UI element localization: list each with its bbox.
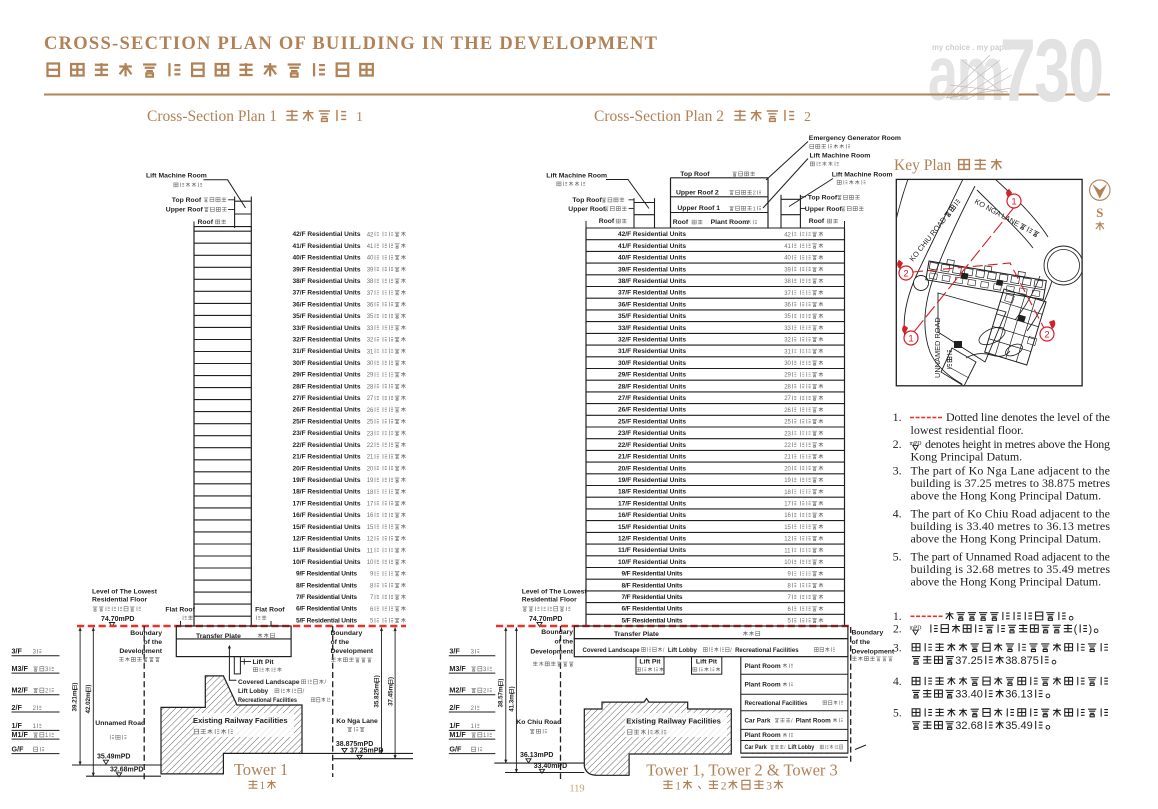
svg-text:2: 2 [753, 191, 756, 197]
svg-text:): ) [508, 686, 515, 688]
svg-text:1: 1 [33, 724, 37, 730]
svg-text:3: 3 [471, 650, 475, 656]
svg-text:26: 26 [367, 408, 374, 414]
svg-text:41/F Residential Units: 41/F Residential Units [293, 243, 361, 250]
svg-text:Upper Roof 1: Upper Roof 1 [677, 205, 720, 212]
svg-text:37/F Residential Units: 37/F Residential Units [618, 290, 686, 297]
svg-text:38.57m(: 38.57m( [497, 684, 504, 708]
svg-text:Development: Development [119, 648, 162, 655]
svg-text:32/F Residential Units: 32/F Residential Units [293, 337, 361, 344]
svg-text:31: 31 [784, 349, 791, 355]
svg-text:74.70mPD: 74.70mPD [101, 616, 134, 623]
svg-text:35/F Residential Units: 35/F Residential Units [618, 313, 686, 320]
svg-text:25: 25 [367, 420, 374, 426]
svg-text:): ) [72, 683, 79, 685]
svg-text:CROSS-SECTION PLAN OF BUILDING: CROSS-SECTION PLAN OF BUILDING IN THE DE… [44, 34, 658, 54]
svg-text:8: 8 [370, 583, 374, 589]
svg-text:above the Hong Kong Principal: above the Hong Kong Principal Datum. [911, 532, 1102, 546]
svg-text:above the Hong Kong Principal: above the Hong Kong Principal Datum. [911, 489, 1102, 503]
svg-text:Car Park: Car Park [745, 717, 771, 724]
svg-text:1/F: 1/F [449, 721, 460, 730]
svg-text:Top Roof: Top Roof [172, 197, 202, 204]
svg-text:Lift Machine Room: Lift Machine Room [146, 173, 207, 180]
svg-text:UNNAMED ROAD: UNNAMED ROAD [933, 317, 942, 378]
svg-text:18: 18 [367, 490, 374, 496]
svg-text:21: 21 [367, 455, 374, 461]
svg-text:36/F Residential Units: 36/F Residential Units [618, 301, 686, 308]
svg-text:/: / [730, 647, 732, 654]
svg-text:Development: Development [530, 649, 573, 656]
svg-text:Upper Roof 2: Upper Roof 2 [676, 189, 719, 196]
svg-text:3: 3 [33, 650, 37, 656]
svg-text:Lift Machine Room: Lift Machine Room [810, 153, 871, 160]
svg-text:730: 730 [1000, 22, 1103, 121]
svg-text:42/F Residential Units: 42/F Residential Units [293, 231, 361, 238]
svg-text:Recreational Facilities: Recreational Facilities [745, 700, 808, 707]
svg-text:7/F Residential Units: 7/F Residential Units [296, 594, 357, 601]
svg-text:29/F Residential Units: 29/F Residential Units [618, 372, 686, 379]
svg-text:3.: 3. [893, 463, 902, 477]
svg-text:3.: 3. [893, 642, 902, 654]
svg-text:2: 2 [483, 689, 487, 695]
svg-text:Flat Roof: Flat Roof [165, 607, 195, 614]
svg-text:37.45m(: 37.45m( [387, 682, 394, 706]
svg-text:Level of The Lowest: Level of The Lowest [522, 589, 588, 596]
svg-text:6/F Residential Units: 6/F Residential Units [296, 606, 357, 613]
svg-text:18: 18 [784, 490, 791, 496]
svg-text:1: 1 [260, 780, 266, 792]
svg-text:Residential Floor: Residential Floor [92, 597, 147, 604]
svg-text:above the Hong Kong Principal: above the Hong Kong Principal Datum. [911, 575, 1102, 589]
svg-text:28: 28 [367, 384, 374, 390]
svg-text:/: / [303, 688, 305, 695]
svg-text:41: 41 [784, 244, 791, 250]
svg-text:36.13: 36.13 [1005, 689, 1033, 701]
svg-text:Lift Pit: Lift Pit [639, 659, 661, 666]
svg-text:Emergency Generator Room: Emergency Generator Room [809, 135, 901, 142]
svg-text:11/F Residential Units: 11/F Residential Units [618, 547, 686, 554]
svg-text:G/F: G/F [12, 745, 25, 754]
svg-text:35.49: 35.49 [1005, 720, 1033, 732]
svg-text:42: 42 [367, 232, 374, 238]
svg-text:6: 6 [370, 607, 374, 613]
svg-text:19/F Residential Units: 19/F Residential Units [293, 477, 361, 484]
svg-text:Boundary: Boundary [331, 630, 363, 637]
svg-text:Ko Nga Lane: Ko Nga Lane [336, 718, 378, 725]
svg-text:33: 33 [784, 326, 791, 332]
svg-text:7: 7 [788, 595, 792, 601]
svg-text:Residential Floor: Residential Floor [522, 597, 577, 604]
svg-text:Upper Roof: Upper Roof [805, 206, 843, 213]
svg-text:28: 28 [784, 384, 791, 390]
svg-text:Lift Pit: Lift Pit [696, 659, 718, 666]
svg-text:7/F Residential Units: 7/F Residential Units [622, 594, 683, 601]
svg-text:1: 1 [908, 334, 913, 345]
svg-text:20: 20 [367, 466, 374, 472]
svg-text:2: 2 [804, 110, 811, 125]
svg-text:37: 37 [784, 291, 791, 297]
svg-text:27/F Residential Units: 27/F Residential Units [293, 395, 361, 402]
svg-text:M2/F: M2/F [449, 686, 466, 695]
svg-text:15/F Residential Units: 15/F Residential Units [618, 524, 686, 531]
svg-text:18/F Residential Units: 18/F Residential Units [618, 489, 686, 496]
svg-text:11/F Residential Units: 11/F Residential Units [293, 547, 361, 554]
svg-text:Roof: Roof [809, 218, 825, 225]
svg-text:2.: 2. [893, 437, 902, 451]
svg-text:1: 1 [753, 206, 756, 212]
svg-text:17: 17 [367, 502, 374, 508]
svg-text:32.68: 32.68 [955, 720, 983, 732]
svg-text:Development: Development [852, 648, 895, 655]
svg-text:Lift Lobby: Lift Lobby [788, 745, 815, 752]
svg-text:41/F Residential Units: 41/F Residential Units [618, 243, 686, 250]
svg-text:26/F Residential Units: 26/F Residential Units [618, 407, 686, 414]
svg-text:18/F Residential Units: 18/F Residential Units [293, 489, 361, 496]
svg-text:36.13mPD: 36.13mPD [520, 752, 553, 759]
svg-text:3: 3 [483, 667, 487, 673]
svg-text:Key Plan: Key Plan [894, 157, 952, 174]
svg-text:of the: of the [555, 639, 574, 646]
svg-text:26: 26 [784, 408, 791, 414]
svg-text:1: 1 [1011, 197, 1016, 208]
svg-text:Tower 1: Tower 1 [234, 760, 288, 779]
svg-text:38: 38 [367, 279, 374, 285]
svg-text:32: 32 [784, 338, 791, 344]
svg-text:16/F Residential Units: 16/F Residential Units [618, 512, 686, 519]
svg-text:Car Park: Car Park [745, 745, 768, 752]
svg-text:19: 19 [367, 478, 374, 484]
svg-text:74.70mPD: 74.70mPD [529, 616, 562, 623]
svg-text:35: 35 [367, 314, 374, 320]
svg-text:21: 21 [784, 455, 791, 461]
svg-text:31/F Residential Units: 31/F Residential Units [618, 348, 686, 355]
svg-text:lowest residential floor.: lowest residential floor. [911, 423, 1024, 437]
svg-text:25: 25 [784, 420, 791, 426]
svg-text:20/F Residential Units: 20/F Residential Units [293, 465, 361, 472]
svg-text:2: 2 [45, 689, 49, 695]
svg-text:40: 40 [367, 256, 374, 262]
svg-text:39: 39 [784, 267, 791, 273]
svg-text:Plant Room: Plant Room [711, 219, 749, 226]
svg-text:M1/F: M1/F [449, 730, 466, 739]
svg-text:12: 12 [784, 537, 791, 543]
svg-text:15: 15 [784, 525, 791, 531]
svg-text:of the: of the [144, 639, 163, 646]
svg-text:36/F Residential Units: 36/F Residential Units [293, 301, 361, 308]
svg-text:2: 2 [903, 269, 908, 280]
svg-text:G/F: G/F [449, 745, 462, 754]
svg-text:Top Roof: Top Roof [572, 197, 602, 204]
svg-text:M3/F: M3/F [449, 664, 466, 673]
svg-text:9: 9 [370, 572, 374, 578]
svg-text:1: 1 [45, 733, 49, 739]
svg-text:15/F Residential Units: 15/F Residential Units [293, 524, 361, 531]
svg-text:): ) [1089, 624, 1093, 636]
svg-text:Lift Machine Room: Lift Machine Room [546, 173, 607, 180]
svg-text:39/F Residential Units: 39/F Residential Units [293, 266, 361, 273]
svg-text:Tower 1, Tower 2 & Tower 3: Tower 1, Tower 2 & Tower 3 [646, 761, 838, 780]
svg-text:32.68mPD: 32.68mPD [110, 767, 143, 774]
svg-text:39: 39 [367, 267, 374, 273]
svg-text:5.: 5. [893, 549, 902, 563]
svg-text:38: 38 [784, 279, 791, 285]
svg-text:35.49mPD: 35.49mPD [97, 754, 130, 761]
svg-text:38/F Residential Units: 38/F Residential Units [618, 278, 686, 285]
svg-text:30/F Residential Units: 30/F Residential Units [293, 360, 361, 367]
svg-text:21/F Residential Units: 21/F Residential Units [293, 454, 361, 461]
svg-text:26/F Residential Units: 26/F Residential Units [293, 407, 361, 414]
svg-text:16: 16 [367, 513, 374, 519]
svg-text:30: 30 [784, 361, 791, 367]
svg-text:29/F Residential Units: 29/F Residential Units [293, 372, 361, 379]
svg-text:30: 30 [367, 361, 374, 367]
svg-text:12: 12 [367, 537, 374, 543]
svg-text:36: 36 [784, 303, 791, 309]
svg-text:9: 9 [788, 572, 792, 578]
svg-text:2/F: 2/F [449, 703, 460, 712]
svg-text:S: S [1096, 205, 1103, 220]
svg-text:19: 19 [784, 478, 791, 484]
svg-text:(: ( [1074, 624, 1078, 636]
svg-text:Lift Lobby: Lift Lobby [668, 647, 697, 654]
svg-text:39.21m(: 39.21m( [72, 688, 79, 712]
svg-text:Boundary: Boundary [541, 629, 573, 636]
svg-text:23/F Residential Units: 23/F Residential Units [618, 430, 686, 437]
svg-text:2/F: 2/F [12, 703, 23, 712]
svg-text:5/F Residential Units: 5/F Residential Units [622, 617, 683, 624]
svg-text:23: 23 [367, 431, 374, 437]
svg-text:Lift Machine Room: Lift Machine Room [832, 172, 893, 179]
svg-text:38.875: 38.875 [1005, 655, 1039, 667]
svg-text:2: 2 [721, 781, 727, 793]
svg-text:6: 6 [788, 607, 792, 613]
svg-text:28/F Residential Units: 28/F Residential Units [293, 383, 361, 390]
svg-text:19/F Residential Units: 19/F Residential Units [618, 477, 686, 484]
svg-text:4.: 4. [893, 676, 902, 688]
svg-text:40: 40 [784, 256, 791, 262]
svg-text:42/F Residential Units: 42/F Residential Units [618, 231, 686, 238]
svg-text:11: 11 [784, 548, 791, 554]
svg-text:16/F Residential Units: 16/F Residential Units [293, 512, 361, 519]
svg-text:31: 31 [367, 349, 374, 355]
svg-text:4.: 4. [893, 506, 902, 520]
svg-text:5.: 5. [893, 708, 902, 720]
svg-text:Recreational Facilities: Recreational Facilities [238, 697, 297, 705]
svg-text:20: 20 [784, 466, 791, 472]
svg-text:Plant Room: Plant Room [796, 717, 831, 724]
svg-text:23/F Residential Units: 23/F Residential Units [293, 430, 361, 437]
svg-text:Roof: Roof [673, 219, 689, 226]
svg-text:Plant Room: Plant Room [745, 682, 781, 689]
svg-text:1.: 1. [893, 611, 902, 623]
svg-text:of the: of the [852, 639, 871, 646]
svg-text:22/F Residential Units: 22/F Residential Units [618, 442, 686, 449]
svg-text:40/F Residential Units: 40/F Residential Units [618, 255, 686, 262]
svg-text:8: 8 [788, 583, 792, 589]
svg-text:9/F Residential Units: 9/F Residential Units [622, 571, 683, 578]
svg-text:23: 23 [784, 431, 791, 437]
svg-text:33: 33 [367, 326, 374, 332]
svg-text:Cross-Section Plan 1: Cross-Section Plan 1 [147, 108, 277, 125]
svg-text:5/F Residential Units: 5/F Residential Units [296, 617, 357, 624]
svg-text:32: 32 [367, 338, 374, 344]
svg-text:33.40: 33.40 [955, 689, 983, 701]
svg-text:Transfer Plate: Transfer Plate [196, 633, 241, 640]
svg-text:Covered Landscape: Covered Landscape [583, 647, 641, 654]
svg-text:8/F Residential Units: 8/F Residential Units [296, 582, 357, 589]
svg-text:7: 7 [370, 595, 374, 601]
svg-text:Lift Lobby: Lift Lobby [238, 688, 268, 695]
svg-text:42: 42 [784, 232, 791, 238]
svg-text:Roof: Roof [198, 219, 214, 226]
svg-text:8/F Residential Units: 8/F Residential Units [622, 582, 683, 589]
svg-text:12/F Residential Units: 12/F Residential Units [618, 536, 686, 543]
svg-text:am: am [928, 32, 1003, 118]
svg-text:22/F Residential Units: 22/F Residential Units [293, 442, 361, 449]
svg-text:2: 2 [33, 706, 37, 712]
svg-text:38/F Residential Units: 38/F Residential Units [293, 278, 361, 285]
svg-text:29: 29 [367, 373, 374, 379]
svg-text:2.: 2. [893, 624, 902, 636]
svg-text:Development: Development [331, 648, 374, 655]
svg-text:3: 3 [766, 781, 772, 793]
svg-text:3: 3 [45, 667, 49, 673]
svg-text:): ) [387, 677, 394, 679]
svg-text:2: 2 [471, 706, 475, 712]
svg-text:): ) [85, 685, 92, 687]
svg-text:Cross-Section Plan 2: Cross-Section Plan 2 [594, 108, 724, 125]
svg-text:10/F Residential Units: 10/F Residential Units [293, 559, 361, 566]
svg-text:32/F Residential Units: 32/F Residential Units [618, 337, 686, 344]
svg-text:119: 119 [569, 784, 584, 795]
svg-text:Plant Room: Plant Room [745, 663, 781, 670]
svg-text:M2/F: M2/F [12, 686, 29, 695]
svg-text:17/F Residential Units: 17/F Residential Units [618, 500, 686, 507]
svg-text:Plant Room: Plant Room [745, 732, 781, 739]
svg-text:2: 2 [1044, 330, 1049, 341]
svg-text:35.825m(: 35.825m( [373, 680, 380, 707]
svg-text:Existing Railway Facilities: Existing Railway Facilities [193, 716, 288, 725]
svg-text:1/F: 1/F [12, 721, 23, 730]
svg-text:/: / [324, 679, 326, 686]
svg-text:Upper Roof: Upper Roof [568, 206, 606, 213]
svg-text:3/F: 3/F [12, 647, 23, 656]
svg-text:40/F Residential Units: 40/F Residential Units [293, 255, 361, 262]
svg-text:15: 15 [367, 525, 374, 531]
svg-text:Boundary: Boundary [130, 630, 162, 637]
svg-text:42.02m(: 42.02m( [85, 690, 92, 714]
svg-text:Flat Roof: Flat Roof [255, 607, 285, 614]
svg-text:16: 16 [784, 513, 791, 519]
svg-text:41.3m(: 41.3m( [508, 691, 515, 712]
svg-text:10: 10 [367, 560, 374, 566]
svg-text:17: 17 [784, 502, 791, 508]
svg-text:37.25: 37.25 [955, 655, 983, 667]
svg-text:31/F Residential Units: 31/F Residential Units [293, 348, 361, 355]
svg-text:M3/F: M3/F [12, 664, 29, 673]
svg-text:3/F: 3/F [449, 647, 460, 656]
svg-text:35: 35 [784, 314, 791, 320]
svg-text:Upper Roof: Upper Roof [166, 207, 204, 214]
svg-text:22: 22 [367, 443, 374, 449]
svg-text:Kong Principal Datum.: Kong Principal Datum. [911, 450, 1023, 464]
svg-text:28/F Residential Units: 28/F Residential Units [618, 383, 686, 390]
svg-text:): ) [497, 679, 504, 681]
svg-text:20/F Residential Units: 20/F Residential Units [618, 465, 686, 472]
svg-text:5: 5 [788, 619, 792, 625]
svg-text:10/F Residential Units: 10/F Residential Units [618, 559, 686, 566]
svg-text:33/F Residential Units: 33/F Residential Units [293, 325, 361, 332]
svg-text:5: 5 [370, 619, 374, 625]
svg-text:36: 36 [367, 303, 374, 309]
svg-text:25/F Residential Units: 25/F Residential Units [618, 418, 686, 425]
svg-text:Ko Chiu Road: Ko Chiu Road [516, 719, 561, 726]
svg-text:Level of The Lowest: Level of The Lowest [92, 589, 158, 596]
svg-text:12/F Residential Units: 12/F Residential Units [293, 536, 361, 543]
svg-text:1: 1 [356, 110, 363, 125]
svg-text:17/F Residential Units: 17/F Residential Units [293, 500, 361, 507]
svg-text:Covered Landscape: Covered Landscape [238, 679, 300, 686]
svg-text:41: 41 [367, 244, 374, 250]
svg-text:27: 27 [367, 396, 374, 402]
svg-text:27: 27 [784, 396, 791, 402]
svg-text:33.40mPD: 33.40mPD [534, 763, 567, 770]
svg-text:Recreational Facilities: Recreational Facilities [735, 647, 799, 654]
svg-text:M1/F: M1/F [12, 730, 29, 739]
svg-text:39/F Residential Units: 39/F Residential Units [618, 266, 686, 273]
svg-text:37: 37 [367, 291, 374, 297]
svg-text:Lift Pit: Lift Pit [253, 659, 275, 666]
svg-text:1: 1 [675, 781, 681, 793]
svg-text:22: 22 [784, 443, 791, 449]
svg-text:Unnamed Road: Unnamed Road [95, 720, 145, 727]
svg-text:/: / [663, 647, 665, 654]
svg-text:Transfer Plate: Transfer Plate [614, 631, 659, 638]
svg-text:Boundary: Boundary [852, 630, 884, 637]
svg-text:25/F Residential Units: 25/F Residential Units [293, 418, 361, 425]
svg-text:35/F Residential Units: 35/F Residential Units [293, 313, 361, 320]
svg-text:1.: 1. [893, 410, 902, 424]
svg-text:): ) [373, 675, 380, 677]
svg-text:6/F Residential Units: 6/F Residential Units [622, 606, 683, 613]
svg-text:21/F Residential Units: 21/F Residential Units [618, 454, 686, 461]
svg-text:27/F Residential Units: 27/F Residential Units [618, 395, 686, 402]
svg-text:of the: of the [331, 639, 350, 646]
svg-text:9/F Residential Units: 9/F Residential Units [296, 571, 357, 578]
svg-text:29: 29 [784, 373, 791, 379]
svg-text:1: 1 [483, 733, 487, 739]
svg-text:30/F Residential Units: 30/F Residential Units [618, 360, 686, 367]
svg-text:37.25mPD: 37.25mPD [350, 747, 383, 754]
svg-text:37/F Residential Units: 37/F Residential Units [293, 290, 361, 297]
svg-text:Existing Railway Facilities: Existing Railway Facilities [626, 717, 721, 726]
svg-text:Top Roof: Top Roof [808, 195, 838, 202]
svg-text:1: 1 [471, 724, 475, 730]
svg-text:33/F Residential Units: 33/F Residential Units [618, 325, 686, 332]
svg-text:11: 11 [367, 548, 374, 554]
svg-text:Roof: Roof [599, 218, 615, 225]
svg-text:10: 10 [784, 560, 791, 566]
svg-text:Top Roof: Top Roof [680, 171, 710, 178]
